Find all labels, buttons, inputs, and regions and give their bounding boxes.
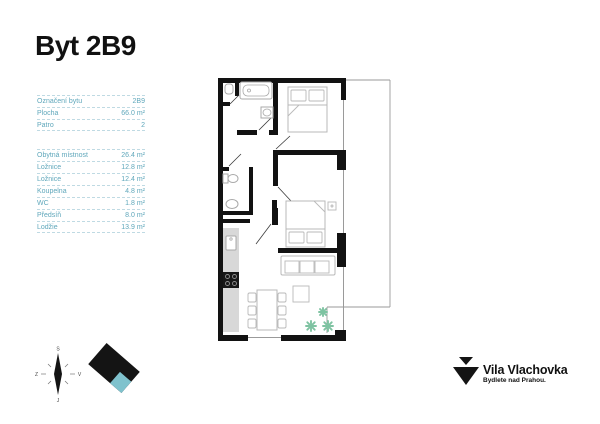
wc-washbasin-icon	[226, 200, 238, 209]
table-row: Plocha 66.0 m²	[37, 107, 145, 119]
row-value: 8.0 m²	[125, 212, 145, 219]
row-label: Patro	[37, 122, 54, 129]
bed-icon	[288, 87, 327, 132]
row-label: Obytná místnost	[37, 152, 88, 159]
bathtub-icon	[240, 82, 272, 99]
table-row: Ložnice 12.8 m²	[37, 161, 145, 173]
row-label: Koupelna	[37, 188, 67, 195]
brand-name: Vila Vlachovka	[483, 363, 568, 377]
apartment-info-table: Označení bytu 2B9 Plocha 66.0 m² Patro 2	[37, 95, 145, 131]
kitchen-sink-icon	[226, 236, 236, 250]
row-value: 13.9 m²	[121, 224, 145, 231]
table-row: Označení bytu 2B9	[37, 95, 145, 107]
row-label: Lodžie	[37, 224, 58, 231]
stove-icon	[223, 272, 239, 288]
plant-icon	[306, 321, 316, 331]
row-label: Plocha	[37, 110, 58, 117]
table-row: Předsíň 8.0 m²	[37, 209, 145, 221]
row-value: 1.8 m²	[125, 200, 145, 207]
table-row: Patro 2	[37, 119, 145, 131]
row-label: Předsíň	[37, 212, 61, 219]
dining-table-icon	[257, 290, 277, 330]
row-value: 4.8 m²	[125, 188, 145, 195]
rooms-table: Obytná místnost 26.4 m² Ložnice 12.8 m² …	[37, 149, 145, 233]
row-label: Ložnice	[37, 176, 61, 183]
coffee-table-icon	[293, 286, 309, 302]
row-label: Označení bytu	[37, 98, 82, 105]
brand-logo-icon	[452, 356, 480, 386]
site-plan-icon	[80, 334, 152, 406]
bed-icon	[286, 201, 325, 247]
table-row: Obytná místnost 26.4 m²	[37, 149, 145, 161]
row-value: 12.8 m²	[121, 164, 145, 171]
page-title: Byt 2B9	[35, 30, 136, 62]
loggia-outline	[327, 80, 390, 333]
corner-sink-icon	[225, 84, 233, 94]
table-row: WC 1.8 m²	[37, 197, 145, 209]
compass-west-label: Z	[35, 372, 38, 378]
table-row: Lodžie 13.9 m²	[37, 221, 145, 233]
compass-south-label: J	[57, 398, 60, 404]
row-label: WC	[37, 200, 49, 207]
row-value: 12.4 m²	[121, 176, 145, 183]
row-value: 2	[141, 122, 145, 129]
row-value: 2B9	[133, 98, 145, 105]
floor-plan	[215, 74, 393, 346]
compass-rose-icon: S J Z V	[34, 344, 82, 404]
plant-icon	[319, 308, 327, 316]
washbasin-icon	[261, 107, 273, 118]
row-value: 66.0 m²	[121, 110, 145, 117]
plant-icon	[323, 321, 333, 331]
brand-tagline: Bydlete nad Prahou.	[483, 377, 546, 384]
compass-north-label: S	[56, 347, 60, 353]
nightstand-icon	[328, 202, 336, 210]
table-row: Koupelna 4.8 m²	[37, 185, 145, 197]
table-row: Ložnice 12.4 m²	[37, 173, 145, 185]
sofa-icon	[281, 256, 335, 275]
toilet-icon	[223, 174, 238, 183]
row-value: 26.4 m²	[121, 152, 145, 159]
row-label: Ložnice	[37, 164, 61, 171]
